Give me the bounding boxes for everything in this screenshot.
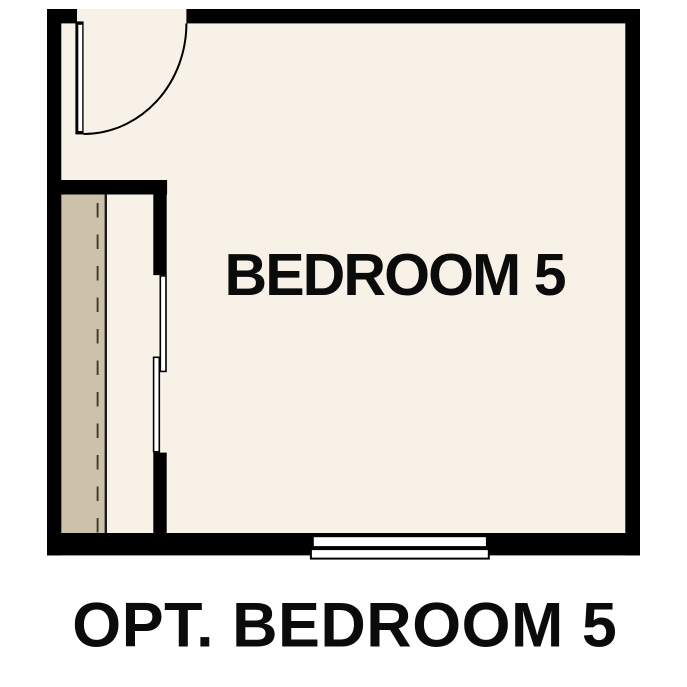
svg-text:BEDROOM 5: BEDROOM 5 (225, 242, 566, 308)
svg-text:OPT. BEDROOM 5: OPT. BEDROOM 5 (72, 591, 617, 661)
